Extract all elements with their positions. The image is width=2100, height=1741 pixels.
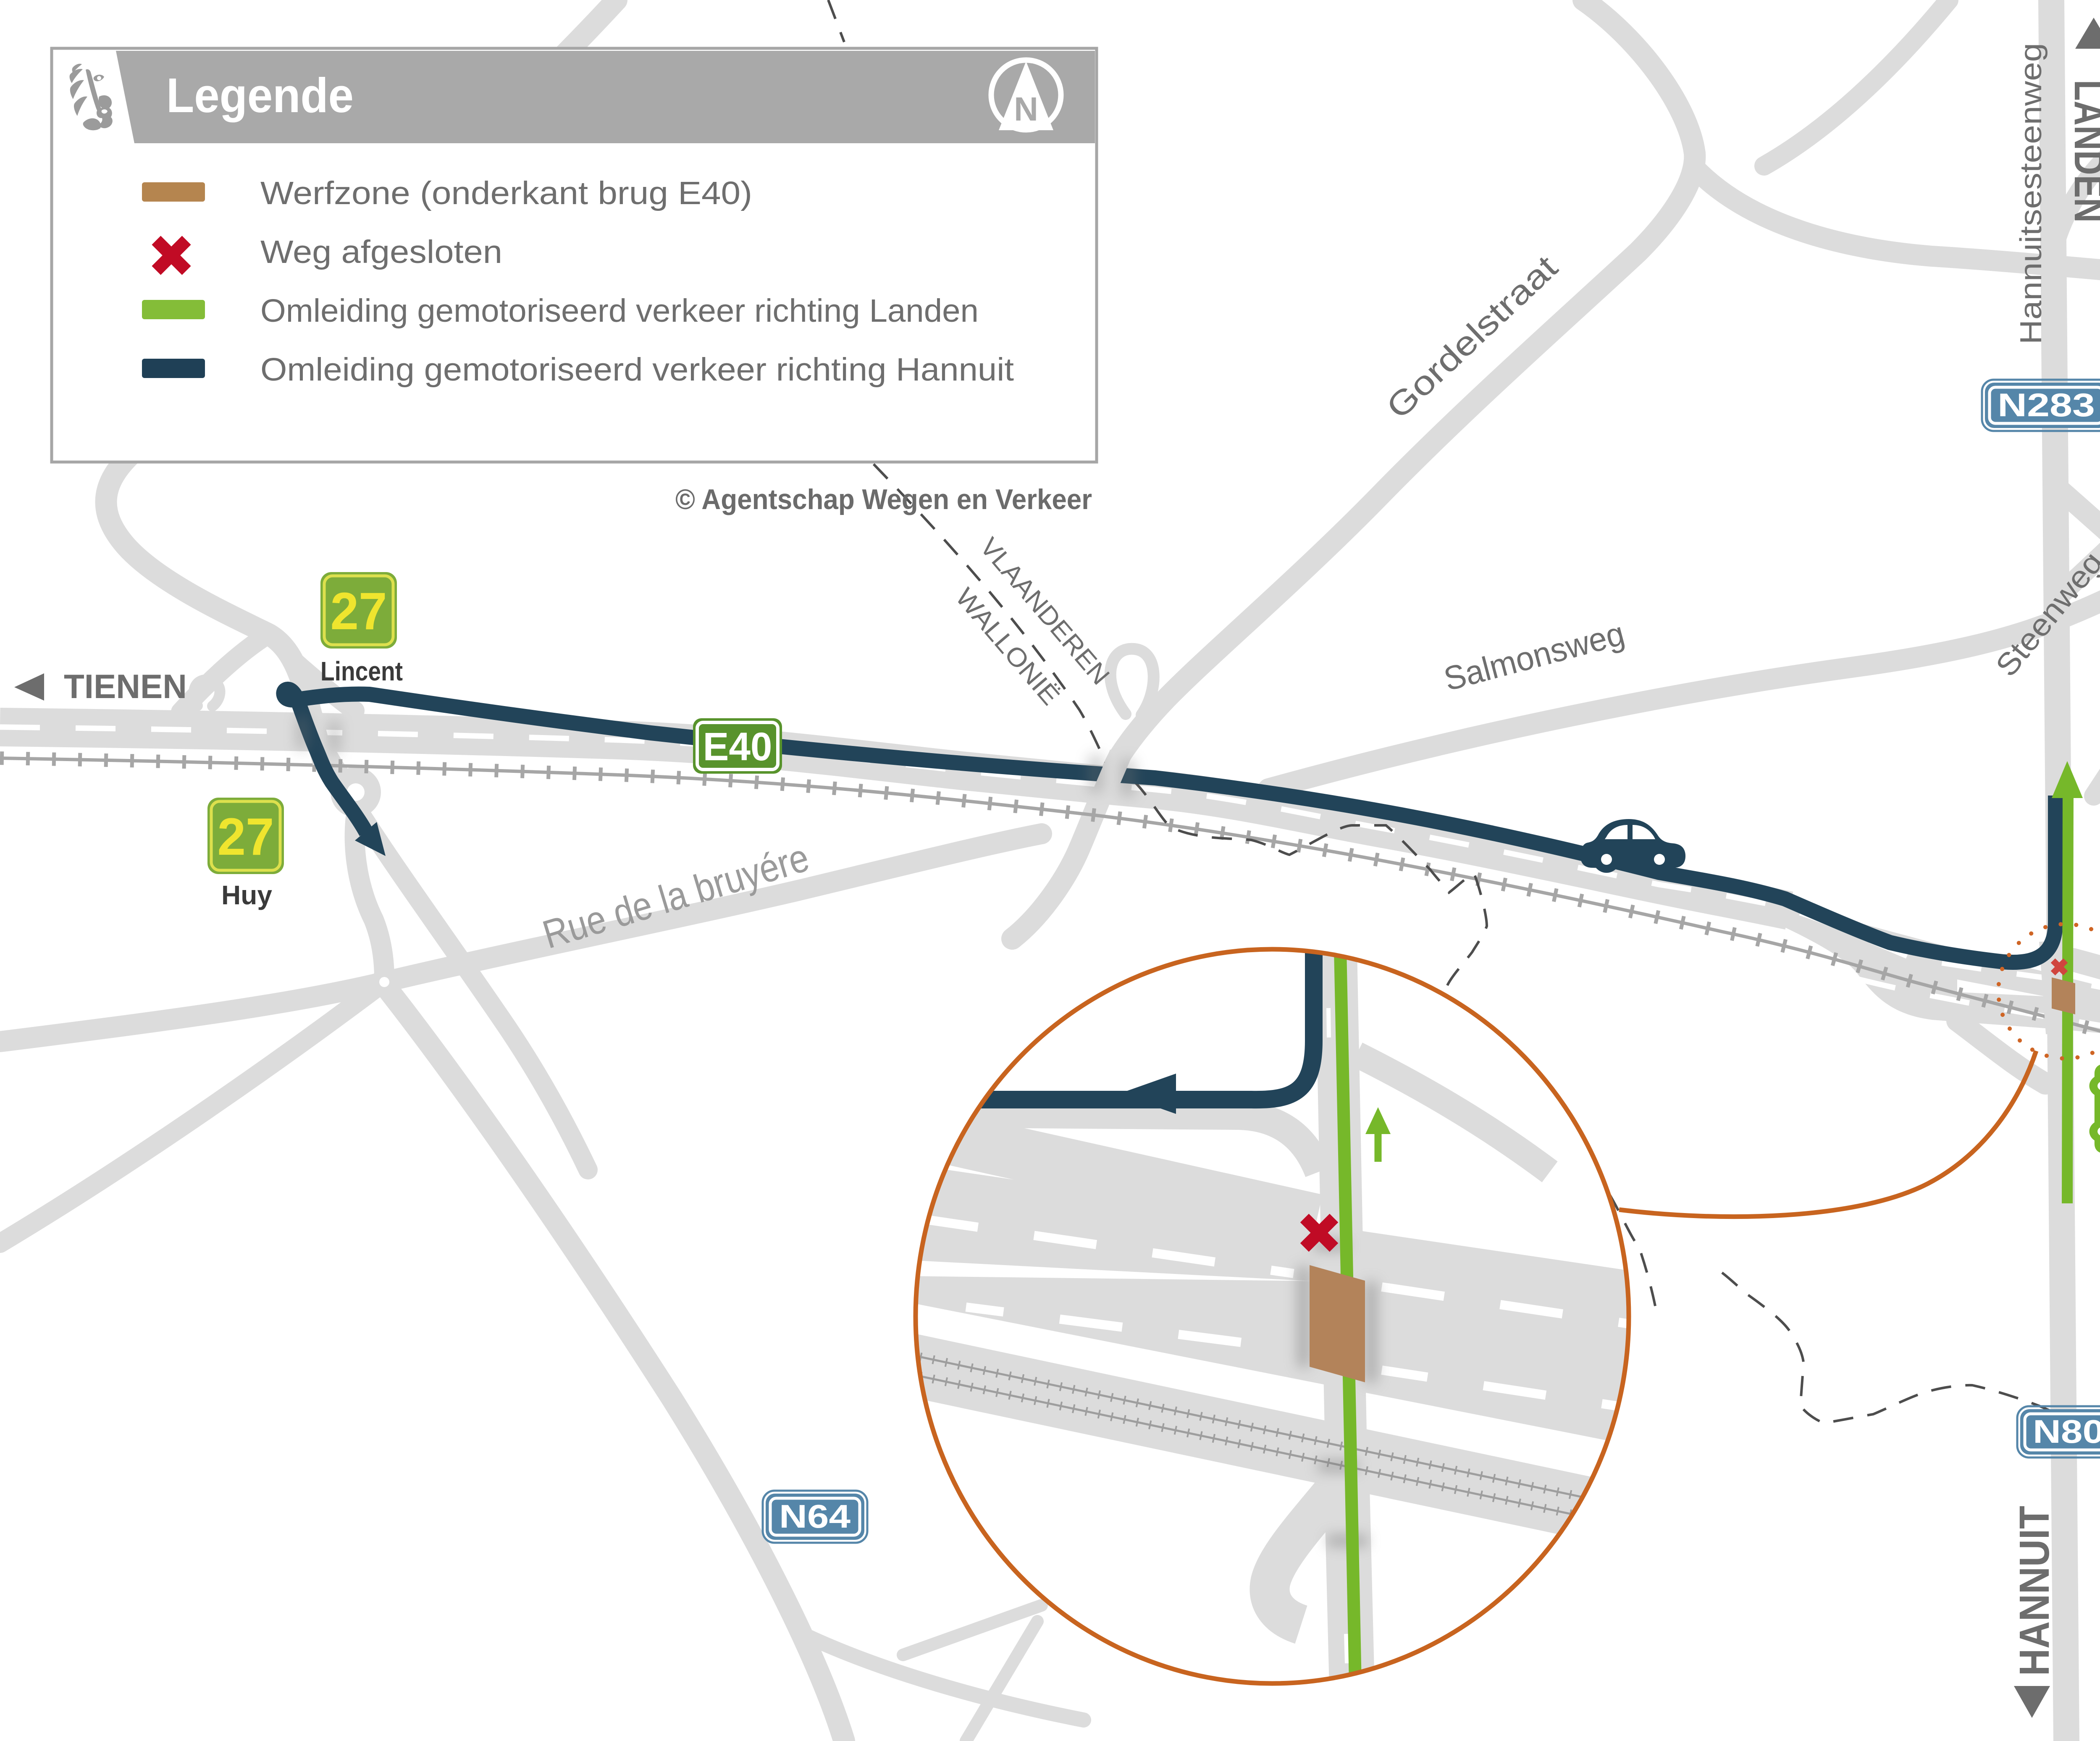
svg-text:N80: N80	[2033, 1413, 2100, 1450]
svg-text:Hannuitsesteenweg: Hannuitsesteenweg	[2014, 43, 2048, 344]
svg-text:Weg afgesloten: Weg afgesloten	[260, 234, 502, 270]
svg-text:N283: N283	[1998, 386, 2095, 423]
svg-text:27: 27	[331, 582, 387, 641]
svg-text:E40: E40	[703, 725, 772, 769]
svg-text:Werfzone (onderkant brug E40): Werfzone (onderkant brug E40)	[260, 175, 752, 211]
svg-text:LANDEN: LANDEN	[2066, 80, 2100, 223]
svg-text:N64: N64	[779, 1498, 850, 1535]
svg-text:N: N	[1014, 90, 1038, 128]
svg-text:Legende: Legende	[166, 68, 354, 123]
svg-text:27: 27	[218, 808, 274, 866]
svg-text:HANNUIT: HANNUIT	[2011, 1506, 2058, 1676]
svg-text:© Agentschap Wegen en Verkeer: © Agentschap Wegen en Verkeer	[675, 483, 1092, 515]
svg-text:TIENEN: TIENEN	[64, 668, 187, 706]
svg-text:Huy: Huy	[221, 880, 272, 910]
svg-text:Omleiding gemotoriseerd verkee: Omleiding gemotoriseerd verkeer richting…	[260, 352, 1014, 388]
svg-text:Omleiding gemotoriseerd verkee: Omleiding gemotoriseerd verkeer richting…	[260, 293, 979, 329]
svg-text:Lincent: Lincent	[320, 656, 403, 686]
